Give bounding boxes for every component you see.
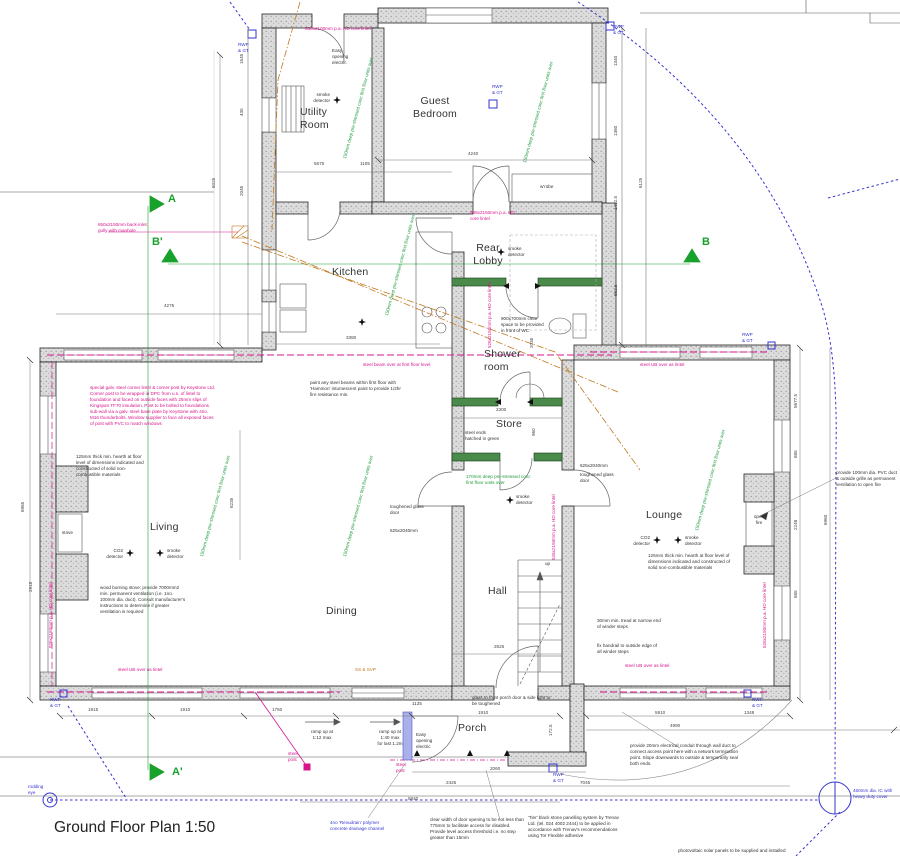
room-label-hall: Hall [488, 585, 507, 598]
room-label-guest-bedroom: Guest Bedroom [395, 95, 475, 121]
note-fire-vent: provide 100mm dia. PVC duct & outside gr… [836, 470, 898, 488]
dim-label: 685 [793, 590, 798, 598]
note-lintel-v3: 526x2150mm p.a. HD core lintel [762, 582, 768, 648]
note-rwp-6: RWP & GT [752, 697, 763, 709]
note-winder-handrail: fix handrail to outside edge of all wind… [597, 643, 661, 655]
dim-label: 6235 [229, 498, 234, 508]
dim-label: 1402.5 [613, 196, 618, 210]
note-rwp-4: RWP & GT [742, 332, 753, 344]
note-rodding-eye: rodding eye [28, 784, 43, 796]
note-pv-panels: photovoltaic solar panels to be supplied… [678, 848, 786, 854]
dim-label: 2248 [793, 520, 798, 530]
room-label-dining: Dining [326, 605, 357, 618]
note-ss-svp: SS & SVP [355, 667, 376, 673]
dim-label: 1348 [744, 710, 754, 715]
note-floor-units-store: 170mm deep pre-stressed conc first floor… [466, 474, 536, 486]
note-rwp-5: RWP & GT [50, 697, 61, 709]
note-winder-tread: 30mm min. tread at narrow end of winder … [597, 618, 661, 630]
co2-detector-label-lounge: CO2 detector [630, 535, 650, 547]
dim-label: 2425 [446, 780, 456, 785]
note-lintel-v4: 526x2150mm p.a. HD core lintel [48, 582, 54, 648]
dim-label: 172.5 [548, 725, 553, 737]
dim-label: 1340 [613, 56, 618, 66]
room-label-living: Living [150, 521, 179, 534]
page-title: Ground Floor Plan 1:50 [54, 818, 215, 837]
note-steel-ub-1: steel UB over as lintel [118, 667, 162, 673]
note-ic: 450mm dia. IC with heavy duty cover [853, 788, 899, 800]
note-steel-beam-over: steel beam over at first floor level [363, 362, 430, 368]
dim-label: 1360 [613, 126, 618, 136]
note-lintel-v1: 526x2150mm p.a. HD core lintel [487, 282, 493, 348]
note-ramp-2: ramp up at 1:40 max for last 1.2m [366, 729, 414, 747]
note-easy-opening-2: Easy opening electric [416, 732, 432, 750]
smoke-detector-label-utility: smoke detector [306, 92, 330, 104]
dim-label: 2918 [28, 582, 33, 592]
dim-label: 4990 [670, 723, 680, 728]
dim-label: 960 [531, 428, 536, 436]
section-marker-a: A [168, 193, 176, 207]
dim-label: 4275 [164, 303, 174, 308]
note-lintel-top: 650x2100mm p.a. HD core lintel [305, 26, 385, 32]
co2-detector-label-living: CO2 detector [103, 548, 123, 560]
dim-label: 5840 [408, 796, 418, 801]
dim-label: 2045 [239, 186, 244, 196]
dim-label: 6025 [211, 178, 216, 188]
room-label-lounge: Lounge [646, 509, 682, 522]
stove-label: stove [62, 530, 73, 536]
room-label-porch: Porch [458, 722, 486, 735]
dim-label: 1910 [180, 707, 190, 712]
open-fire-label: open fire [748, 514, 770, 526]
smoke-detector-label-lounge: smoke detector [685, 535, 702, 547]
note-wc-space: 900x700mm clear space to be provided in … [501, 316, 547, 334]
dim-label: 5910 [655, 710, 665, 715]
note-door-width: clear width of door opening to be not le… [430, 817, 524, 841]
dim-label: 6960 [823, 515, 828, 525]
dim-label: 6965 [20, 502, 25, 512]
dim-label: 5677.5 [793, 394, 798, 408]
stairs-up-label: up [545, 561, 550, 567]
stairs [518, 560, 562, 686]
floor-plan-canvas: Utility Room Guest Bedroom Kitchen Rear … [0, 0, 900, 856]
dim-label: 685 [793, 450, 798, 458]
note-rwp-1: RWP & GT [238, 42, 249, 54]
room-label-kitchen: Kitchen [332, 266, 368, 279]
dim-label: 7045 [580, 780, 590, 785]
note-drainage-channel: 4no 'Revudrain' polymer concrete drainag… [330, 820, 406, 832]
dim-label: 2035 [529, 338, 534, 348]
smoke-detector-label-hall: smoke detector [516, 494, 533, 506]
section-marker-b-prime: B' [152, 236, 163, 250]
dim-label: 2625 [494, 644, 504, 649]
dim-label: 2060 [490, 766, 500, 771]
note-paint-steel: paint any steel beams within first floor… [310, 380, 402, 398]
dim-label: 1915 [88, 707, 98, 712]
room-label-utility: Utility Room [300, 106, 329, 132]
drain-runs-orange [242, 2, 640, 470]
dim-label: 552.5 [613, 285, 618, 297]
note-ramp-1: ramp up at 1:12 max [300, 729, 344, 741]
note-steel-ends: steel ends hatched in green [465, 430, 509, 442]
note-rwp-3: RWP & GT [613, 24, 624, 36]
note-stove-vent: wood burning stove; provide 7000mm2 min.… [100, 585, 186, 615]
dim-label: 1750 [272, 707, 282, 712]
note-steel-post-1: steel post [288, 751, 298, 763]
note-porch-glass: glass to front porch door & side light t… [472, 695, 552, 707]
room-label-shower-room: Shower room [484, 348, 521, 374]
note-easy-opening-1: Easy opening electric [332, 48, 348, 66]
note-steel-post-2: steel post [396, 762, 406, 774]
fixtures-layer [58, 86, 772, 552]
note-toughened-1: toughened glass door [390, 504, 438, 516]
note-door-625-1: 625x2040mm [390, 528, 418, 534]
note-lintel-guest: 938x2150mm p.a. HD core lintel [470, 210, 516, 222]
dim-label: 4240 [468, 151, 478, 156]
dim-label: 2300 [496, 407, 506, 412]
dim-label: 435 [239, 108, 244, 116]
ramp-arrows [305, 719, 400, 725]
note-hearth-living: 125mm thick min. hearth at floor level o… [76, 454, 150, 478]
dim-label: 1135 [412, 701, 422, 706]
note-rwp-2: RWP & GT [492, 84, 503, 96]
note-gully: 650x2150mm back-inlet gully with manhole [98, 222, 156, 234]
note-tier-panelling: 'Tier' black stone panelling system by T… [528, 815, 626, 839]
note-steel-ub-2: steel UB over as lintel [625, 663, 669, 669]
section-marker-a-prime: A' [172, 766, 183, 780]
bearing-markers [414, 283, 541, 756]
note-toughened-2: toughened glass door [580, 472, 628, 484]
note-lintel-v2: 526x2150mm p.a. HD core lintel [551, 494, 557, 560]
dim-label: 3380 [346, 335, 356, 340]
note-door-625-2: 625x2040mm [580, 463, 608, 469]
dim-label: 1910 [478, 710, 488, 715]
note-corner-post: special galv. steel corner lintel & corn… [90, 385, 216, 427]
floor-plan-drawing [0, 0, 900, 856]
dim-label: 1105 [360, 161, 370, 166]
dim-label: 6125 [638, 178, 643, 188]
section-marker-b: B [702, 236, 710, 250]
note-conduit: provide 20mm electrical conduit through … [630, 743, 740, 767]
smoke-detector-label-living: smoke detector [167, 548, 184, 560]
dim-label: 1545 [239, 54, 244, 64]
smoke-detector-label-lobby: smoke detector [508, 246, 525, 258]
wardrobe-label: w'robe [540, 184, 553, 190]
note-steel-ub-3: steel UB over as lintel [640, 362, 684, 368]
dim-label: 5675 [314, 161, 324, 166]
note-hearth-lounge: 125mm thick min. hearth at floor level o… [648, 553, 740, 571]
note-rwp-7: RWP & GT [553, 772, 564, 784]
